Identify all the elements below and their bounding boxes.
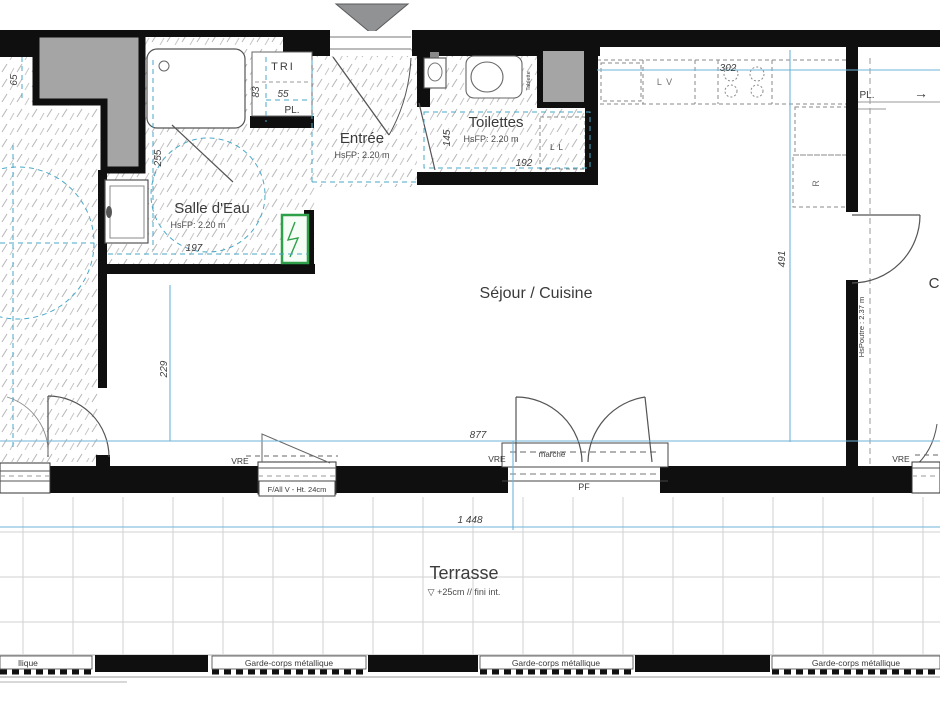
pl-entree-label: PL.	[284, 105, 299, 116]
pl-right-label: PL.	[859, 90, 874, 101]
floor-plan-svg: Salle d'Eau HsFP: 2.20 m Entrée HsFP: 2.…	[0, 0, 940, 705]
pf-label: PF	[578, 482, 590, 492]
hsfp-entree: HsFP: 2.20 m	[334, 150, 389, 160]
vre-label: VRE	[892, 454, 910, 464]
dim-83: 83	[251, 86, 262, 98]
toilet	[466, 56, 522, 98]
dim-302: 302	[720, 63, 737, 74]
hsfp-toilettes: HsFP: 2.20 m	[463, 134, 518, 144]
vre-label: VRE	[231, 456, 249, 466]
window-left-corner	[0, 463, 50, 493]
window-vre-right	[912, 455, 940, 493]
dim-491: 491	[777, 251, 788, 268]
hsfp-salle-deau: HsFP: 2.20 m	[170, 220, 225, 230]
cooktop-burner	[725, 85, 737, 97]
room-label-chambre: C	[929, 275, 940, 292]
dim-192: 192	[516, 158, 533, 169]
dim-55: 55	[277, 89, 289, 100]
marche-label: marche	[539, 450, 566, 459]
railing-label: Garde-corps métallique	[812, 658, 901, 668]
shower-tray	[147, 49, 245, 128]
floor-plan: Salle d'Eau HsFP: 2.20 m Entrée HsFP: 2.…	[0, 0, 940, 705]
railing	[0, 655, 940, 682]
vre-label: VRE	[488, 454, 506, 464]
washbasin	[105, 180, 148, 243]
fridge-label: R	[811, 179, 821, 187]
hspoutre-label: HsPoutre : 2.37 m	[857, 297, 866, 357]
shaft-duct	[540, 48, 587, 105]
dim-255: 255	[153, 149, 164, 167]
fallv-label: F/All V - Ht. 24cm	[268, 485, 327, 494]
room-label-terrasse: Terrasse	[429, 563, 498, 583]
cooktop-burner	[750, 67, 764, 81]
closet-lines-right	[858, 58, 940, 465]
tri-label: TRI	[271, 61, 295, 73]
room-label-toilettes: Toilettes	[468, 114, 523, 131]
dim-65: 65	[9, 74, 20, 86]
washing-machine-label: L L	[550, 143, 564, 152]
dim-229: 229	[159, 360, 170, 378]
fridge-box	[793, 155, 849, 207]
corner-door-arc	[913, 424, 937, 468]
cooktop-burner	[751, 85, 763, 97]
room-label-entree: Entrée	[340, 130, 384, 147]
chambre-door	[852, 215, 920, 283]
fridge-box	[795, 107, 850, 155]
terrasse-level: ▽ +25cm // fini int.	[428, 587, 501, 597]
dim-1448: 1 448	[457, 515, 482, 526]
tablette-label: Tablette	[526, 71, 532, 90]
dim-145: 145	[442, 129, 453, 146]
entrance-arrow-icon	[336, 4, 408, 34]
railing-label: Garde-corps métallique	[245, 658, 334, 668]
french-door-pf	[502, 397, 668, 481]
room-label-sejour: Séjour / Cuisine	[480, 285, 593, 302]
dim-197: 197	[186, 243, 203, 254]
electrical-panel	[282, 215, 308, 263]
room-label-salle-deau: Salle d'Eau	[174, 200, 249, 217]
dim-877: 877	[470, 430, 487, 441]
railing-label: llique	[18, 658, 38, 668]
arrow-right-icon: →	[914, 85, 928, 101]
dishwasher-label: L V	[657, 77, 673, 87]
railing-label: Garde-corps métallique	[512, 658, 601, 668]
